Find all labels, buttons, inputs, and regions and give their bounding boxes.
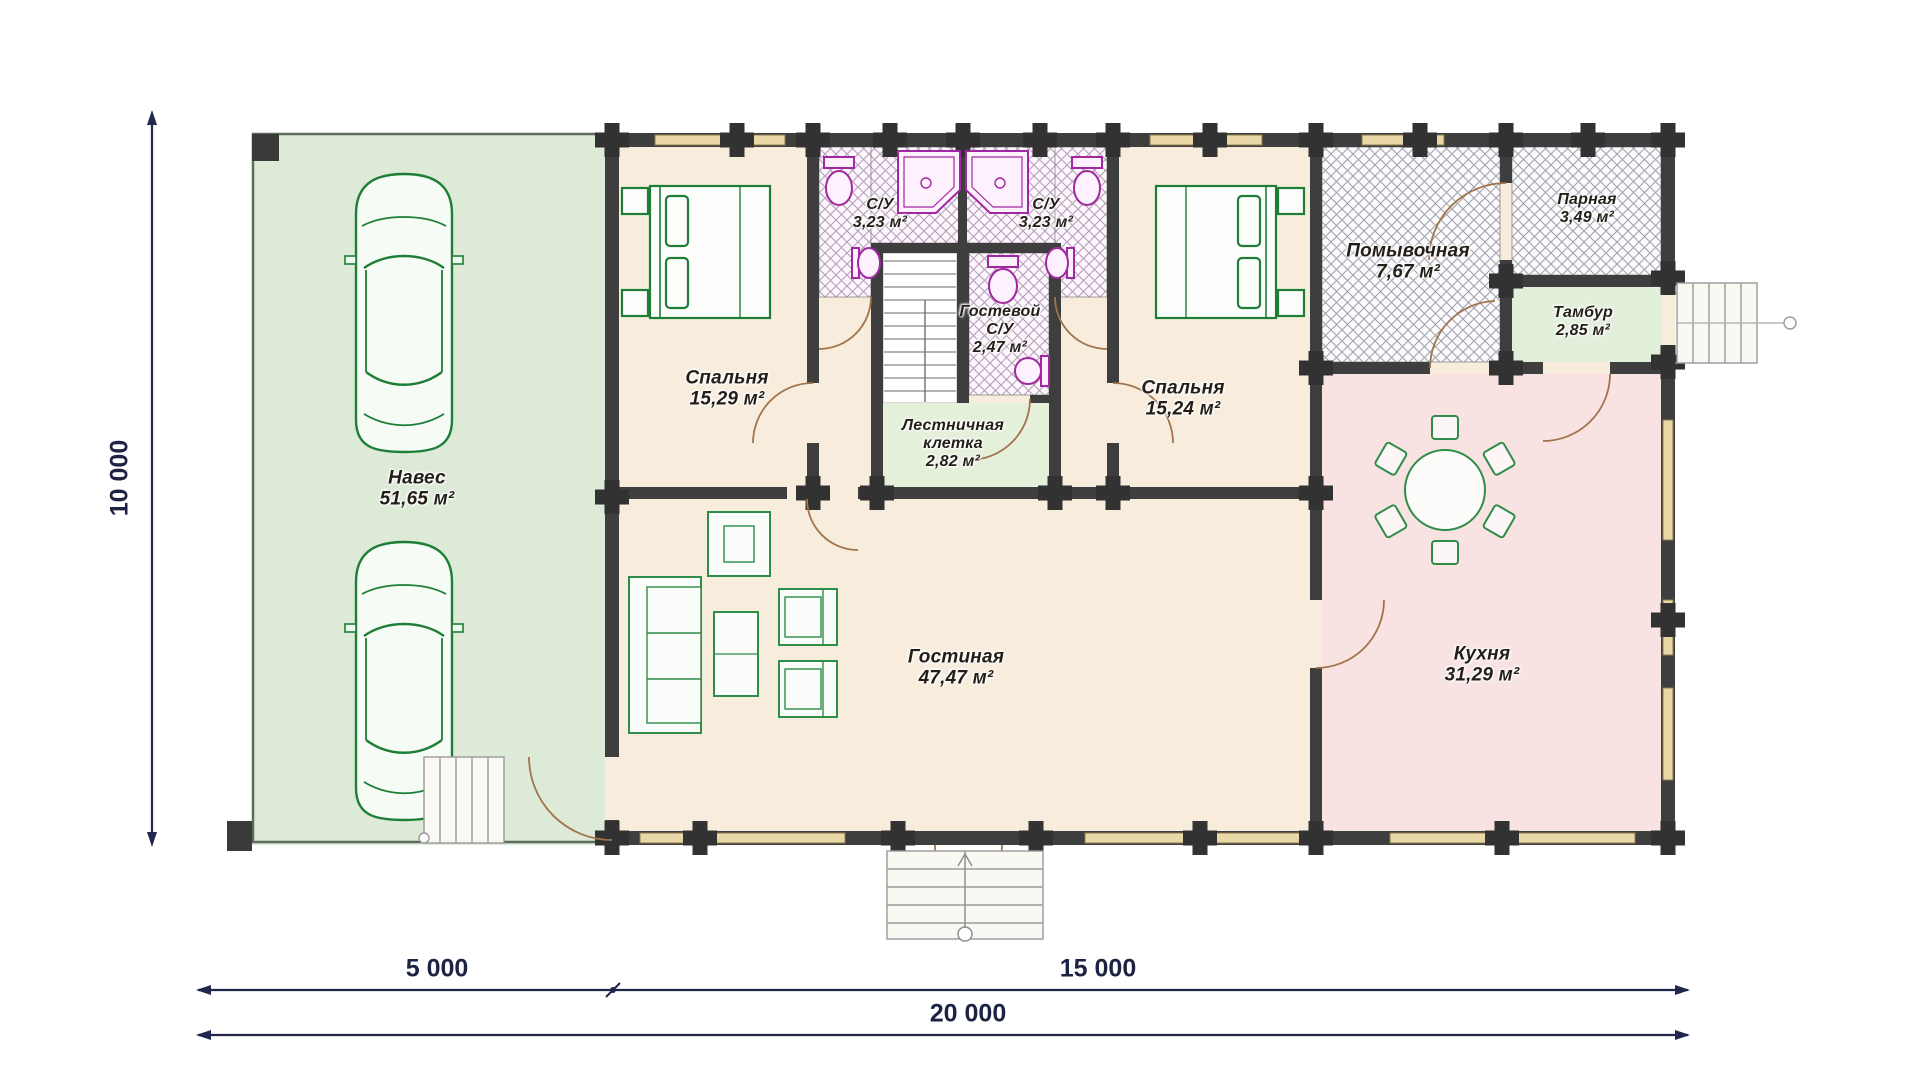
dim-label-segment-2: 15 000 (1060, 955, 1136, 984)
side-stairs-carport (419, 757, 504, 843)
room-label-living-room: Гостиная47,47 м² (908, 647, 1004, 690)
entry-stairs-bottom (887, 851, 1043, 941)
room-label-bedroom-1: Спальня15,29 м² (685, 368, 768, 411)
armchair-icon (779, 589, 837, 645)
dim-line-total (196, 1030, 1690, 1040)
dim-line-vertical (147, 110, 157, 847)
coffee-table-icon (714, 612, 758, 696)
sink-icon (1015, 356, 1049, 386)
room-label-vestibule: Тамбур2,85 м² (1553, 304, 1613, 340)
room-label-stairwell: Лестничнаяклетка2,82 м² (902, 417, 1004, 471)
window (640, 833, 845, 843)
entry-stairs-right (1677, 283, 1796, 363)
kitchen-area (1322, 374, 1661, 831)
toilet-icon (988, 256, 1018, 303)
carport-column (252, 134, 279, 161)
tv-stand-icon (708, 512, 770, 576)
sink-icon (1046, 248, 1074, 278)
dim-label-segment-1: 5 000 (406, 955, 469, 984)
room-label-wc-2: С/У3,23 м² (1019, 196, 1073, 232)
dim-label-total: 20 000 (930, 1000, 1006, 1029)
sink-icon (852, 248, 880, 278)
room-label-bedroom-2: Спальня15,24 м² (1141, 378, 1224, 421)
window (1663, 420, 1673, 540)
toilet-icon (824, 157, 854, 205)
room-label-washroom: Помывочная7,67 м² (1346, 241, 1470, 284)
toilet-icon (1072, 157, 1102, 205)
room-label-kitchen: Кухня31,29 м² (1445, 644, 1520, 687)
carport-column (227, 821, 252, 851)
stairs-area (883, 253, 957, 403)
room-label-carport: Навес51,65 м² (380, 468, 455, 511)
window (1663, 688, 1673, 780)
car-icon (345, 174, 463, 452)
plan-drawing (0, 0, 1920, 1080)
dim-label-height: 10 000 (106, 440, 135, 516)
room-label-guest-wc: ГостевойС/У2,47 м² (959, 303, 1040, 357)
dim-line-segments (196, 983, 1690, 997)
sofa-icon (629, 577, 701, 733)
room-label-wc-1: С/У3,23 м² (853, 196, 907, 232)
room-label-steam-room: Парная3,49 м² (1557, 191, 1616, 227)
floor-plan-canvas: Навес51,65 м² Спальня15,29 м² С/У3,23 м²… (0, 0, 1920, 1080)
armchair-icon (779, 661, 837, 717)
